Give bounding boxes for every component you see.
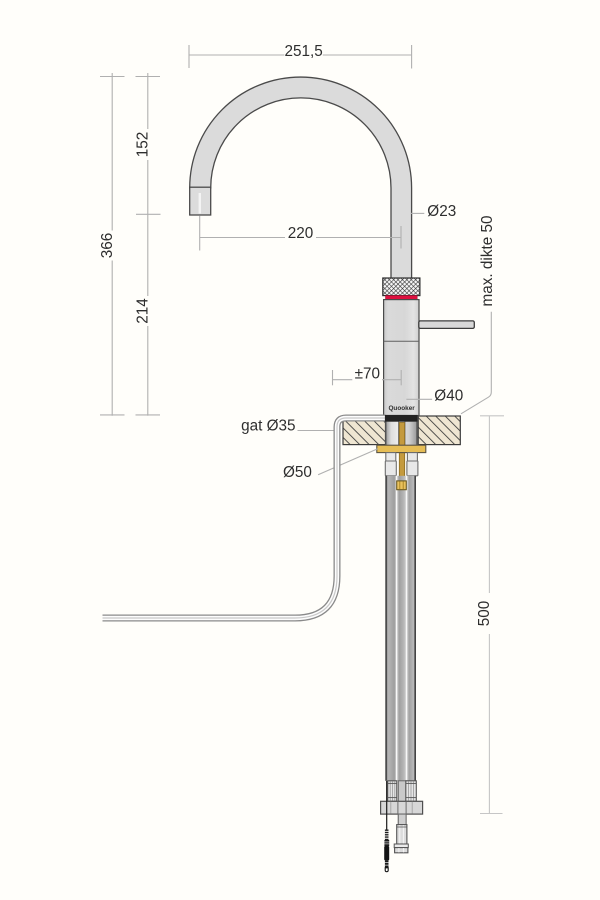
svg-text:152: 152 bbox=[135, 132, 152, 158]
svg-text:gat Ø35: gat Ø35 bbox=[241, 417, 295, 434]
svg-text:Ø23: Ø23 bbox=[427, 203, 456, 220]
svg-text:214: 214 bbox=[135, 298, 152, 324]
svg-text:Ø50: Ø50 bbox=[283, 464, 312, 481]
svg-text:max. dikte 50: max. dikte 50 bbox=[479, 216, 496, 307]
svg-text:Quooker: Quooker bbox=[388, 405, 415, 412]
svg-text:±70: ±70 bbox=[355, 365, 380, 382]
svg-text:251,5: 251,5 bbox=[284, 43, 322, 60]
svg-text:366: 366 bbox=[99, 233, 116, 259]
svg-text:220: 220 bbox=[288, 225, 314, 242]
svg-text:Ø40: Ø40 bbox=[434, 387, 463, 404]
svg-text:500: 500 bbox=[476, 601, 493, 627]
